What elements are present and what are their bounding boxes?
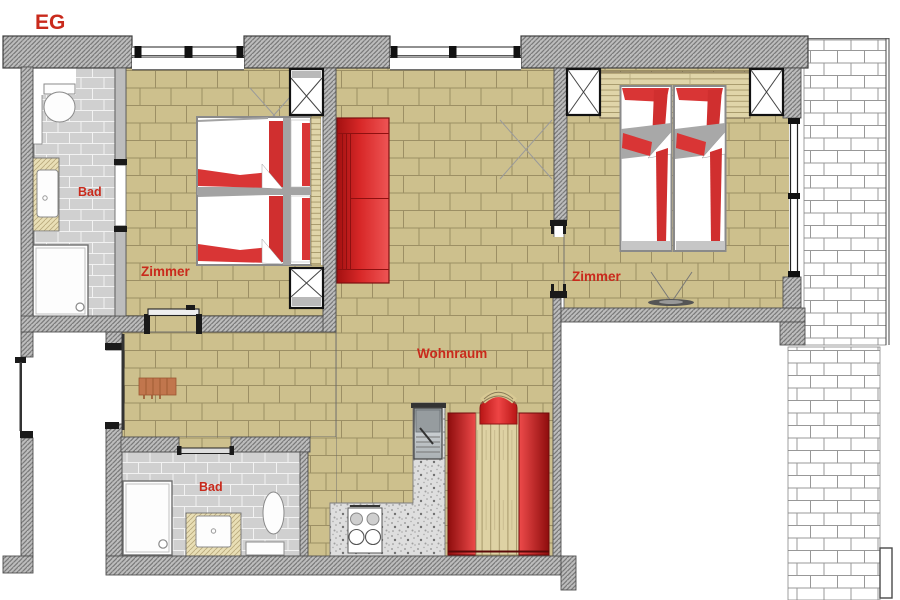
svg-text:Zimmer: Zimmer (572, 269, 622, 284)
svg-text:Bad: Bad (78, 185, 102, 199)
svg-text:Bad: Bad (199, 480, 223, 494)
svg-text:EG: EG (35, 11, 65, 34)
svg-text:Wohnraum: Wohnraum (417, 346, 487, 361)
svg-text:Zimmer: Zimmer (141, 264, 191, 279)
